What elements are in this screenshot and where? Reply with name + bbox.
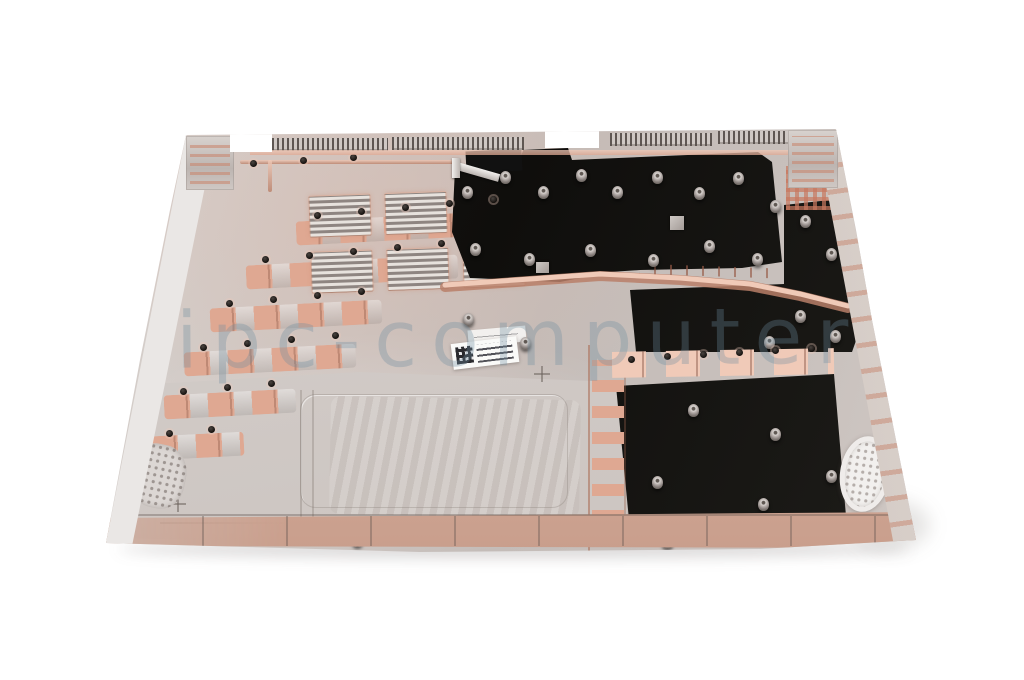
screw-boss	[704, 240, 715, 253]
screw-hole	[306, 252, 313, 259]
screw-boss	[826, 248, 837, 261]
screw-boss	[826, 470, 837, 483]
screw-boss	[648, 254, 659, 267]
hinge-copper-strip	[250, 150, 830, 155]
hinge-cutout	[230, 124, 272, 152]
screw-hole	[180, 388, 187, 395]
screw-boss	[758, 498, 769, 511]
screw-boss	[770, 200, 781, 213]
screw-hole	[350, 154, 357, 161]
screw-hole	[446, 200, 453, 207]
screw-hole	[402, 204, 409, 211]
screw-hole	[208, 426, 215, 433]
screw-boss	[538, 186, 549, 199]
screw-boss	[688, 404, 699, 417]
screw-boss	[576, 169, 587, 182]
screw-hole	[438, 240, 445, 247]
screw-boss	[770, 428, 781, 441]
screw-hole	[314, 212, 321, 219]
screw-boss	[800, 215, 811, 228]
screw-hole	[250, 160, 257, 167]
screw-boss	[470, 243, 481, 256]
screw-boss	[462, 186, 473, 199]
hinge-vent-serration	[392, 137, 524, 150]
hinge-mount-right	[788, 130, 838, 188]
screw-hole	[262, 256, 269, 263]
screw-hole	[358, 288, 365, 295]
screw-hole	[358, 208, 365, 215]
front-lip-seams	[120, 516, 900, 546]
screw-hole	[166, 430, 173, 437]
watermark-text: ipc-computer	[176, 291, 917, 386]
screw-boss	[500, 171, 511, 184]
screw-boss	[652, 476, 663, 489]
screw-boss	[524, 253, 535, 266]
screw-hole	[300, 157, 307, 164]
bottom-case-body: ipc-computer	[0, 0, 1024, 680]
hinge-cutout	[545, 122, 599, 148]
screw-boss	[585, 244, 596, 257]
front-lip-seamline	[130, 514, 900, 516]
screw-boss	[733, 172, 744, 185]
screw-hole	[394, 244, 401, 251]
product-photo-laptop-bottom-case: ipc-computer	[0, 0, 1024, 680]
hinge-vent-serration	[610, 133, 712, 146]
screw-boss	[612, 186, 623, 199]
screw-hole	[350, 248, 357, 255]
screw-boss	[694, 187, 705, 200]
screw-hole	[490, 196, 497, 203]
hinge-mount-left	[186, 136, 234, 190]
screw-boss	[652, 171, 663, 184]
screw-boss	[752, 253, 763, 266]
